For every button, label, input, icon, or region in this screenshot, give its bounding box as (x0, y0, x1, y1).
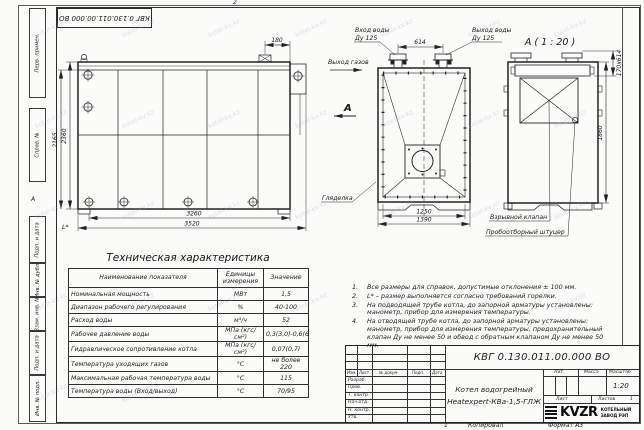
sheets-label: Листов (598, 397, 615, 402)
mass-label: Масса (584, 370, 599, 375)
margin-label: Справ. № (35, 132, 41, 157)
margin-cell-vzam-inv: Взам. инв. № (29, 296, 46, 332)
row-value: 40-100 (264, 301, 309, 314)
stamp-header-izm: Изм. (347, 370, 356, 375)
row-name: Максимальная рабочая температура воды (69, 372, 218, 385)
margin-label: Инв. № дубл. (35, 262, 41, 298)
stamp-header-list: Лист (359, 370, 369, 375)
lit-label: Лит. (554, 370, 565, 375)
row-name: Температура воды (Вход/выход) (69, 385, 218, 398)
stamp-row-tkontr: Т. контр. (348, 393, 369, 398)
boiler-body-side (78, 54, 306, 214)
gas-outlet-label: Выход газов (328, 59, 369, 66)
row-value: не более 220 (264, 357, 309, 372)
row-value: 52 (264, 314, 309, 327)
row-value: 1,5 (264, 288, 309, 301)
zone-mark-top: 2 (233, 0, 237, 6)
dim-l-star: L* (62, 224, 69, 231)
table-row: Температура воды (Вход/выход)°С70/95 (69, 385, 309, 398)
dim-2360: 2360 (61, 128, 68, 143)
row-units: МВт (218, 288, 264, 301)
row-name: Номинальная мощность (69, 288, 218, 301)
dim-180: 180 (271, 37, 283, 44)
detail-view-drawing: А ( 1 : 20 ) (478, 18, 644, 245)
row-name: Рабочее давление воды (69, 327, 218, 342)
table-row: Рабочее давление водыМПа (кгс/см²)0,3(3,… (69, 327, 309, 342)
table-row: Номинальная мощностьМВт1,5 (69, 288, 309, 301)
note-number: 3. (352, 302, 367, 318)
note-text: На подводящей трубе котла, до запорной а… (367, 302, 614, 318)
sheets-value: 1 (630, 397, 633, 402)
dim-1860: 1860 (597, 125, 604, 140)
col-header-value: Значение (264, 269, 309, 288)
title-block-product-name: Котел водогрейный Heatexpert-КВа-1,5-ГЛЖ (445, 369, 543, 422)
zone-mark-bottom: 1 (444, 422, 448, 429)
table-row: Гидравлическое сопротивление котлаМПа (к… (69, 342, 309, 357)
row-name: Расход воды (69, 314, 218, 327)
notes-list: 1.Все размеры для справок, допустимые от… (352, 284, 614, 351)
sampling-fitting-label: Пробоотборный штуцер (486, 228, 565, 236)
doc-number-rotated: КВГ 0.130.011.00.000 ВО (59, 14, 150, 22)
row-units: °С (218, 385, 264, 398)
margin-label: Подп. и дата (35, 222, 41, 257)
table-title: Техническая характеристика (68, 252, 308, 264)
margin-cell-inv-podl: Инв. № подл. (29, 374, 46, 422)
stamp-row-nkontr: Н. контр. (348, 408, 370, 413)
drawing-sheet: 2 А Перв. примен. Справ. № Подп. и дата … (0, 0, 644, 430)
table-row: Диапазон рабочего регулирования%40-100 (69, 301, 309, 314)
row-units: °С (218, 372, 264, 385)
manufacturer-logo: KVZR КОТЕЛЬНЫЙ ЗАВОД РЭП (545, 404, 637, 421)
explosion-valve-label: Взрывной клапан (490, 214, 547, 221)
row-units: м³/ч (218, 314, 264, 327)
margin-label: Взам. инв. № (35, 296, 41, 331)
row-units: МПа (кгс/см²) (218, 327, 264, 342)
table-row: Расход водым³/ч52 (69, 314, 309, 327)
inlet-label-line1: Вход воды (355, 27, 390, 34)
anchor-bolts (82, 69, 305, 209)
scale-value: 1:20 (613, 382, 629, 390)
margin-label: Перв. примен. (35, 34, 41, 73)
margin-cell-inv-dubl: Инв. № дубл. (29, 262, 46, 298)
stamp-header-dokum: № докум. (379, 370, 399, 375)
dim-3520: 3520 (184, 221, 199, 228)
dim-1250: 1250 (416, 209, 431, 216)
stamp-header-podp: Подп. (412, 370, 424, 375)
inlet-label-line2: Ду 125 (354, 35, 377, 42)
row-value: 0,3(3,0)-0,6(6,0) (264, 327, 309, 342)
row-value: 70/95 (264, 385, 309, 398)
margin-label: Подп. и дата (35, 335, 41, 370)
logo-subtitle: КОТЕЛЬНЫЙ ЗАВОД РЭП (601, 407, 632, 418)
scale-label: Масштаб (609, 370, 631, 375)
dim-3260: 3260 (186, 211, 201, 218)
product-name-line1: Котел водогрейный (455, 384, 533, 395)
row-name: Диапазон рабочего регулирования (69, 301, 218, 314)
row-units: % (218, 301, 264, 314)
note-item: 1.Все размеры для справок, допустимые от… (352, 284, 614, 292)
table-header-row: Наименование показателя Единицы измерени… (69, 269, 309, 288)
zone-mark-left: А (31, 196, 35, 203)
row-value: 0,07(0,7) (264, 342, 309, 357)
dim-2165: 2165 (52, 132, 59, 147)
row-units: МПа (кгс/см²) (218, 342, 264, 357)
logo-subtitle-line2: ЗАВОД РЭП (601, 413, 632, 418)
stamp-row-razrab: Разраб. (348, 378, 366, 383)
row-value: 115 (264, 372, 309, 385)
title-block: Изм. Лист № докум. Подп. Дата Разраб. Пр… (345, 345, 640, 423)
note-text: Все размеры для справок, допустимые откл… (367, 284, 614, 292)
format-label: Формат А3 (548, 422, 583, 429)
doc-number-stamp-box: КВГ 0.130.011.00.000 ВО (57, 8, 152, 28)
col-header-name: Наименование показателя (69, 269, 218, 288)
logo-text: KVZR (560, 405, 598, 420)
table-row: Температура уходящих газов°Сне более 220 (69, 357, 309, 372)
row-name: Гидравлическое сопротивление котла (69, 342, 218, 357)
col-header-units: Единицы измерения (218, 269, 264, 288)
sheet-label: Лист (556, 397, 568, 402)
note-number: 2. (352, 293, 367, 301)
logo-bars-icon (545, 406, 557, 419)
title-block-doc-number: КВГ 0.130.011.00.000 ВО (445, 346, 639, 369)
stamp-header-data: Дата (432, 370, 442, 375)
row-units: °С (218, 357, 264, 372)
margin-cell-podp-data-1: Подп. и дата (29, 216, 46, 264)
product-name-line2: Heatexpert-КВа-1,5-ГЛЖ (447, 396, 541, 407)
margin-cell-podp-data-2: Подп. и дата (29, 330, 46, 376)
margin-label: Инв. № подл. (35, 380, 41, 416)
detail-view-title: А ( 1 : 20 ) (524, 37, 575, 48)
note-item: 3.На подводящей трубе котла, до запорной… (352, 302, 614, 318)
dim-614: 614 (414, 39, 426, 46)
dim-170x614: 170х614 (616, 50, 623, 77)
margin-cell-perv-primen: Перв. примен. (29, 8, 46, 98)
dim-1390: 1390 (416, 217, 431, 224)
sight-glass-label: Гляделка (322, 195, 353, 202)
side-view-drawing: 2360 2165 3260 3520 180 L* (48, 28, 312, 240)
boiler-body-rear (504, 53, 602, 210)
stamp-row-nachotd: Нач.отд. (348, 400, 369, 405)
note-item: 2.L* – размер выполняется согласно требо… (352, 293, 614, 301)
stamp-row-utv: Утв. (348, 415, 358, 420)
note-number: 1. (352, 284, 367, 292)
table-row: Максимальная рабочая температура воды°С1… (69, 372, 309, 385)
side-dimensions (58, 41, 306, 231)
tech-characteristics-table: Наименование показателя Единицы измерени… (68, 268, 309, 398)
margin-cell-sprav-no: Справ. № (29, 108, 46, 182)
stamp-row-prov: Пров. (348, 385, 361, 390)
note-text: L* – размер выполняется согласно требова… (367, 293, 614, 301)
section-arrow-label: А (343, 103, 352, 114)
boiler-body-front (378, 54, 470, 216)
copied-label: Копировал (468, 422, 503, 429)
row-name: Температура уходящих газов (69, 357, 218, 372)
